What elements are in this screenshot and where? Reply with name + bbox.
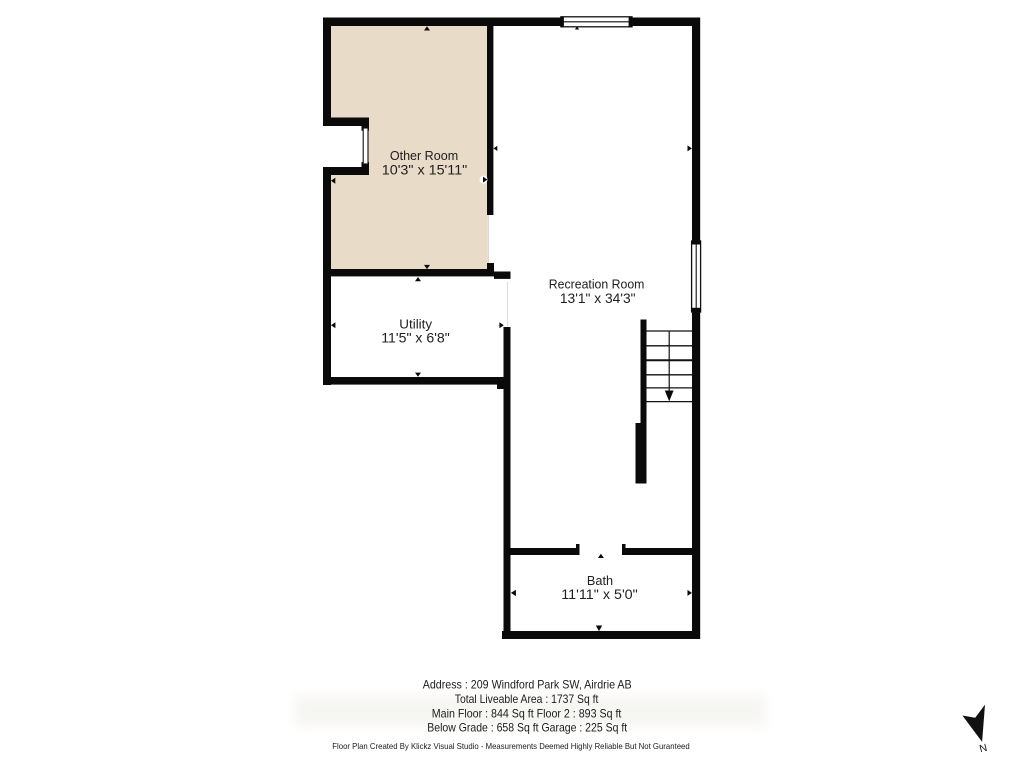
svg-text:13'1" x 34'3": 13'1" x 34'3": [560, 291, 636, 306]
svg-text:10'3" x 15'11": 10'3" x 15'11": [382, 162, 468, 177]
svg-text:Total Liveable Area : 1737 Sq: Total Liveable Area : 1737 Sq ft: [455, 692, 599, 706]
svg-text:Floor Plan Created By Klickz V: Floor Plan Created By Klickz Visual Stud…: [332, 741, 690, 751]
svg-text:Bath: Bath: [587, 573, 613, 588]
svg-text:Other Room: Other Room: [390, 148, 458, 163]
svg-text:Address : 209 Windford Park SW: Address : 209 Windford Park SW, Airdrie …: [423, 678, 632, 692]
svg-text:Below Grade : 658 Sq ft Garage: Below Grade : 658 Sq ft Garage : 225 Sq …: [427, 720, 627, 734]
svg-text:N: N: [978, 742, 988, 755]
svg-text:11'5" x 6'8": 11'5" x 6'8": [381, 330, 450, 345]
svg-text:11'11" x 5'0": 11'11" x 5'0": [561, 587, 638, 602]
svg-text:Main Floor : 844 Sq ft Floor 2: Main Floor : 844 Sq ft Floor 2 : 893 Sq …: [432, 706, 622, 720]
svg-text:Recreation Room: Recreation Room: [549, 277, 645, 292]
